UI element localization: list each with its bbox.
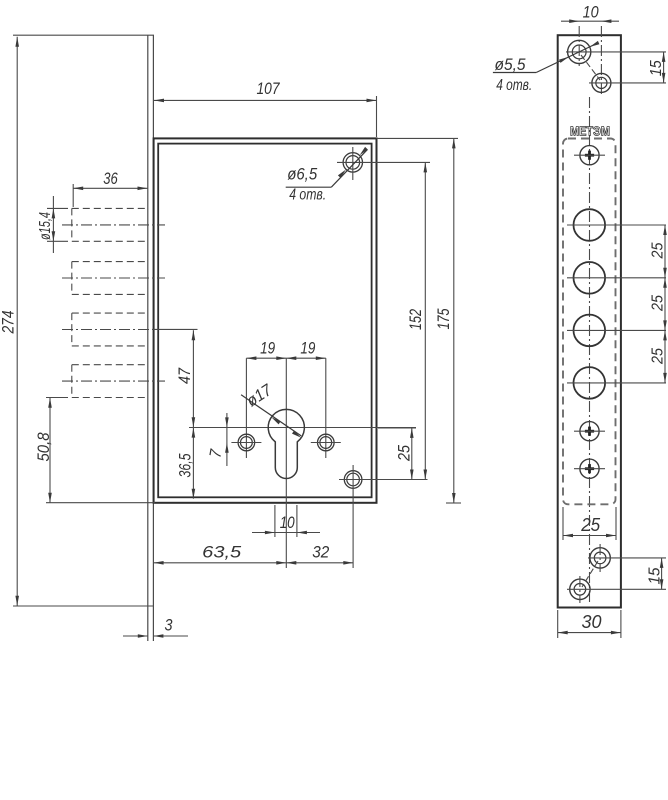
svg-text:152: 152 bbox=[407, 309, 425, 330]
svg-text:107: 107 bbox=[257, 80, 281, 98]
svg-text:15: 15 bbox=[646, 567, 663, 584]
svg-text:50,8: 50,8 bbox=[35, 432, 53, 462]
svg-text:19: 19 bbox=[300, 340, 315, 358]
svg-text:3: 3 bbox=[165, 617, 174, 635]
svg-text:175: 175 bbox=[435, 308, 453, 330]
svg-text:47: 47 bbox=[176, 367, 194, 384]
svg-text:25: 25 bbox=[649, 295, 666, 312]
svg-text:ø15,4: ø15,4 bbox=[37, 212, 54, 240]
svg-text:25: 25 bbox=[649, 242, 666, 259]
svg-text:36: 36 bbox=[103, 170, 118, 188]
svg-text:ø5,5: ø5,5 bbox=[495, 56, 527, 74]
svg-text:10: 10 bbox=[583, 3, 600, 21]
svg-text:25: 25 bbox=[396, 444, 414, 462]
svg-text:274: 274 bbox=[0, 311, 17, 335]
svg-text:МЕТЭМ: МЕТЭМ bbox=[570, 124, 610, 139]
svg-text:32: 32 bbox=[312, 544, 329, 562]
svg-text:25: 25 bbox=[580, 515, 601, 535]
svg-text:4 отв.: 4 отв. bbox=[496, 77, 532, 94]
svg-text:25: 25 bbox=[649, 348, 666, 365]
svg-text:ø6,5: ø6,5 bbox=[287, 165, 318, 183]
svg-text:4 отв.: 4 отв. bbox=[289, 187, 326, 204]
svg-text:10: 10 bbox=[280, 514, 296, 532]
svg-text:15: 15 bbox=[648, 60, 665, 76]
svg-text:63,5: 63,5 bbox=[202, 544, 242, 562]
svg-text:36,5: 36,5 bbox=[177, 453, 195, 478]
svg-text:19: 19 bbox=[260, 340, 275, 358]
svg-text:30: 30 bbox=[582, 612, 602, 632]
